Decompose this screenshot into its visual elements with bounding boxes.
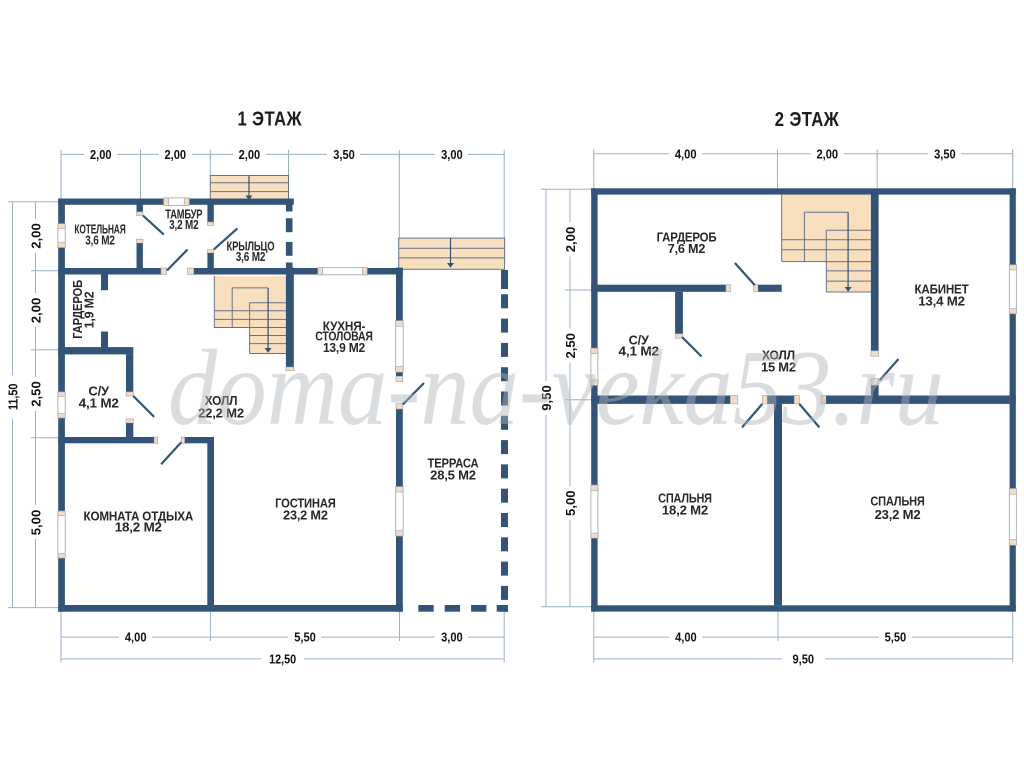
svg-text:1,9 М2: 1,9 М2: [83, 291, 97, 328]
svg-text:4,00: 4,00: [125, 630, 147, 645]
svg-text:5,00: 5,00: [29, 510, 44, 536]
svg-text:2,50: 2,50: [29, 381, 44, 407]
svg-text:СПАЛЬНЯ18,2 М2: СПАЛЬНЯ18,2 М2: [658, 492, 712, 518]
svg-text:3,00: 3,00: [441, 630, 463, 645]
svg-text:5,50: 5,50: [294, 630, 316, 645]
svg-text:ТАМБУР3,2 М2: ТАМБУР3,2 М2: [165, 208, 202, 232]
svg-text:СПАЛЬНЯ23,2 М2: СПАЛЬНЯ23,2 М2: [870, 494, 924, 522]
svg-text:2,00: 2,00: [165, 147, 187, 162]
svg-text:9,50: 9,50: [793, 651, 815, 666]
svg-text:2,00: 2,00: [29, 223, 44, 249]
svg-text:11,50: 11,50: [6, 384, 21, 411]
svg-text:2,00: 2,00: [90, 147, 112, 162]
svg-text:3,50: 3,50: [333, 147, 355, 162]
svg-text:4,00: 4,00: [675, 146, 697, 161]
svg-text:12,50: 12,50: [269, 651, 296, 666]
svg-text:3,00: 3,00: [441, 147, 463, 162]
svg-text:3,50: 3,50: [934, 146, 956, 161]
svg-text:2,00: 2,00: [29, 298, 44, 324]
svg-text:1 ЭТАЖ: 1 ЭТАЖ: [237, 109, 302, 131]
svg-text:5,00: 5,00: [563, 490, 578, 516]
svg-text:ГОСТИНАЯ23,2 М2: ГОСТИНАЯ23,2 М2: [275, 497, 336, 523]
svg-text:КАБИНЕТ13,4 М2: КАБИНЕТ13,4 М2: [915, 282, 970, 308]
svg-text:4,00: 4,00: [675, 630, 697, 645]
svg-text:2,00: 2,00: [817, 146, 839, 161]
svg-text:2,00: 2,00: [239, 147, 261, 162]
svg-text:doma-na-veka53.ru: doma-na-veka53.ru: [168, 329, 944, 448]
svg-text:2 ЭТАЖ: 2 ЭТАЖ: [775, 109, 840, 131]
svg-text:2,00: 2,00: [563, 227, 578, 253]
svg-text:ТЕРРАСА28,5 М2: ТЕРРАСА28,5 М2: [428, 457, 479, 483]
svg-text:5,50: 5,50: [885, 630, 907, 645]
